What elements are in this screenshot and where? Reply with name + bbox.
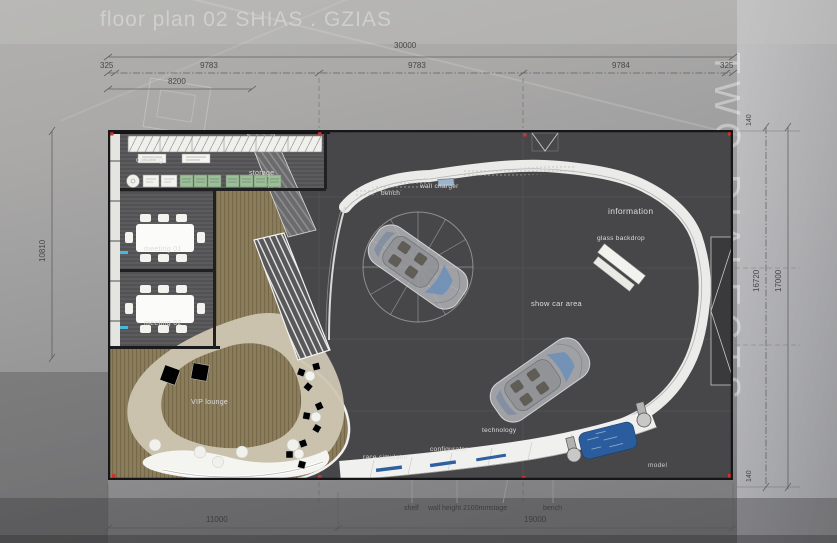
label-show-car-area: show car area	[531, 299, 582, 308]
catering-cabinets-hatch	[128, 136, 322, 152]
dim-seg-3: 9783	[408, 61, 426, 70]
dim-seg-4: 9784	[612, 61, 630, 70]
lounge-table-square	[191, 363, 210, 382]
label-configurator: configurator	[430, 446, 468, 453]
label-bench-top: bench	[541, 167, 560, 174]
dim-total-width: 30000	[394, 41, 416, 50]
label-catering: catering	[136, 157, 163, 164]
page-title: floor plan 02 SHIAS . GZIAS	[100, 8, 392, 32]
label-race-simulator: race simulator	[363, 454, 408, 461]
dim-right-outer: 17000	[774, 270, 783, 292]
dim-seg-2: 9783	[200, 61, 218, 70]
dim-offset-top: 140	[746, 114, 753, 126]
label-meeting02: meeting 02	[144, 320, 182, 327]
label-shelf: shelf	[404, 505, 419, 512]
dim-bottom-left: 11000	[206, 515, 228, 524]
label-vip-lounge: VIP lounge	[191, 399, 228, 406]
dim-bottom-right: 19000	[524, 515, 546, 524]
label-bench-bottom: bench	[543, 505, 562, 512]
label-storage: storage	[249, 170, 274, 177]
background-photo-frame-inner	[156, 89, 196, 122]
label-information: information	[608, 206, 653, 216]
label-stage: stage	[490, 505, 507, 512]
dim-sub-8200: 8200	[168, 77, 186, 86]
label-glass-backdrop: glass backdrop	[597, 235, 645, 242]
dim-right-inner: 16720	[752, 270, 761, 292]
label-bench-left: bench	[381, 190, 400, 197]
dim-offset-bottom: 140	[746, 470, 753, 482]
background-bottom-edge	[0, 535, 837, 543]
dim-left-height: 10810	[38, 240, 47, 262]
label-wall-charger: wall charger	[420, 183, 459, 190]
label-model: model	[648, 462, 667, 469]
glass-backdrop-element	[711, 237, 733, 385]
label-technology: technology	[482, 427, 516, 434]
label-meeting01: meeting 01	[144, 246, 182, 253]
dim-seg-5: 325	[720, 61, 733, 70]
floor-plan-page: { "header": { "title": "floor plan 02 SH…	[0, 0, 837, 543]
dim-seg-1: 325	[100, 61, 113, 70]
label-wall-height: wall height 2100mm	[428, 505, 490, 512]
